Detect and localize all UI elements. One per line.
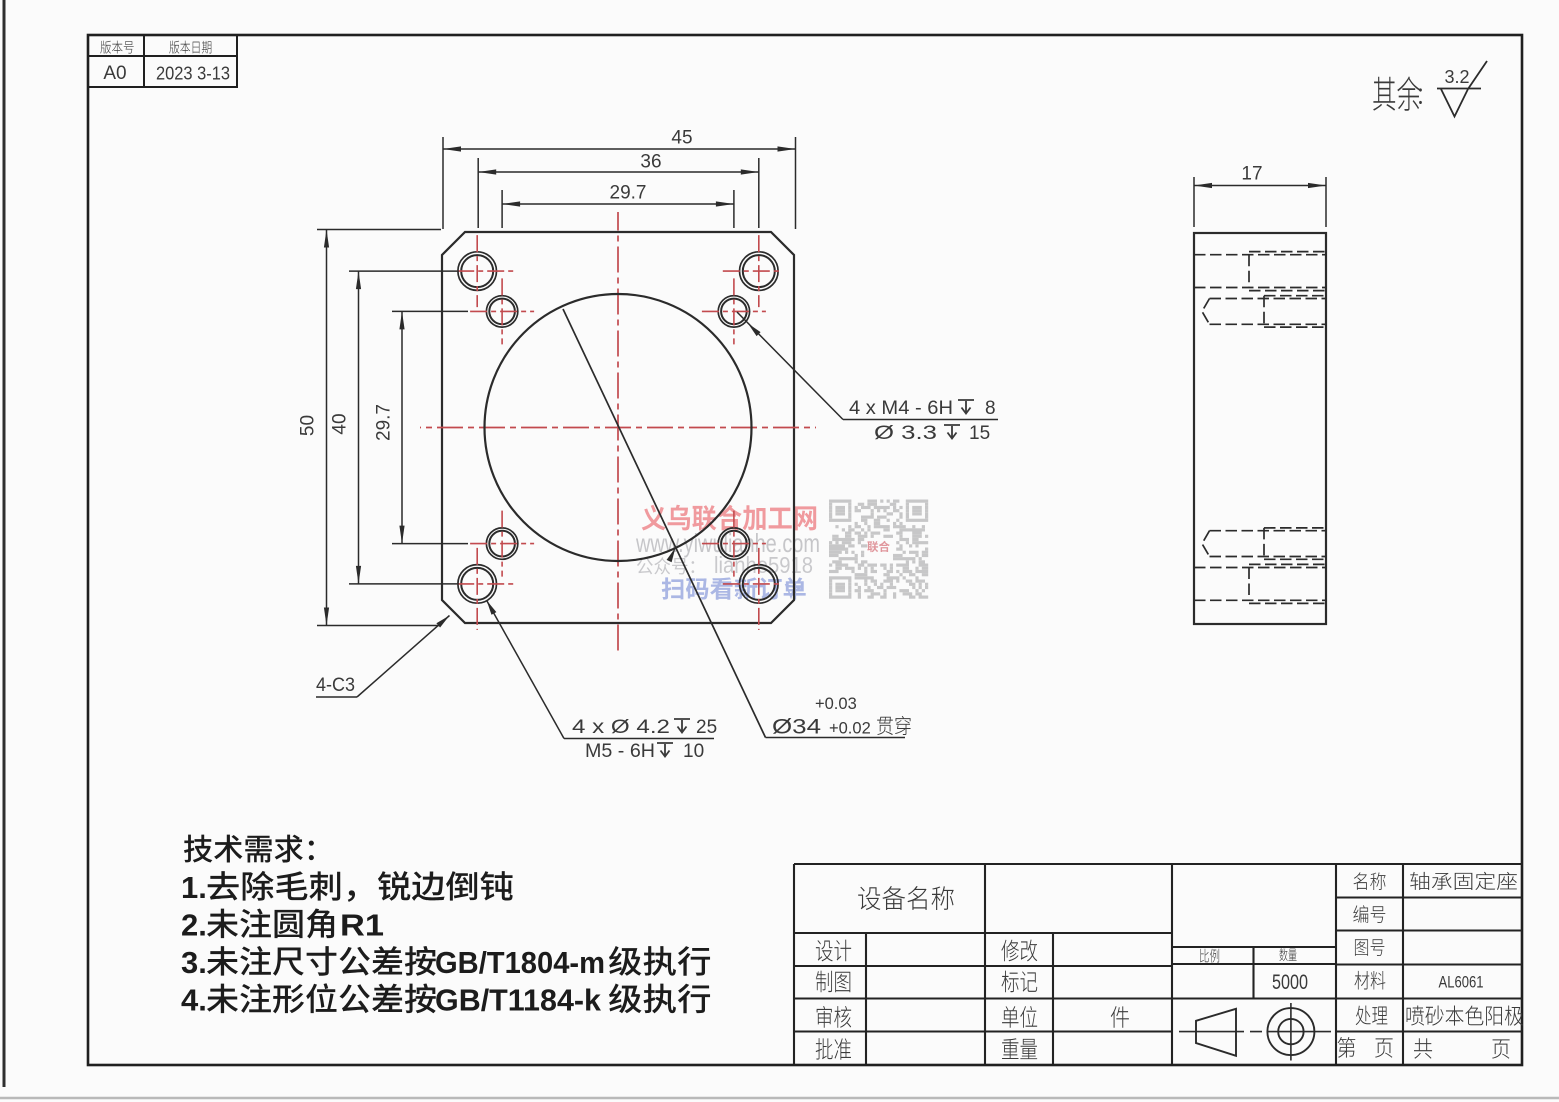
svg-text:AL6061: AL6061 (1439, 973, 1484, 992)
svg-text:A0: A0 (103, 63, 126, 84)
svg-text:4-C3: 4-C3 (316, 675, 355, 696)
svg-text:36: 36 (640, 152, 661, 173)
svg-text:4 x M4 - 6H: 4 x M4 - 6H (849, 398, 953, 419)
svg-text:GB/T1184-k: GB/T1184-k (435, 983, 602, 1018)
svg-text:2.: 2. (181, 908, 207, 943)
svg-text:25: 25 (696, 717, 717, 738)
svg-text:8: 8 (985, 398, 996, 419)
svg-text:3.2: 3.2 (1444, 67, 1469, 87)
svg-text:15: 15 (969, 423, 990, 444)
svg-text:3.: 3. (181, 945, 207, 980)
svg-text:+0.02: +0.02 (829, 720, 871, 738)
svg-text:40: 40 (330, 413, 351, 434)
svg-text:4.: 4. (181, 983, 207, 1018)
svg-text:17: 17 (1241, 164, 1262, 185)
svg-text:+0.03: +0.03 (815, 695, 857, 713)
svg-text:1.: 1. (181, 870, 207, 905)
svg-text:Ø34: Ø34 (772, 716, 821, 739)
svg-text:45: 45 (671, 128, 692, 149)
svg-text:2023 3-13: 2023 3-13 (156, 63, 230, 84)
svg-text:R1: R1 (340, 908, 384, 943)
svg-text:29.7: 29.7 (610, 183, 647, 204)
svg-text:5000: 5000 (1272, 971, 1308, 994)
svg-text:Ø 3.3: Ø 3.3 (874, 423, 937, 444)
svg-text:29.7: 29.7 (374, 404, 395, 441)
svg-text:50: 50 (298, 415, 319, 436)
svg-text:M5 - 6H: M5 - 6H (585, 741, 655, 762)
svg-text:GB/T1804-m: GB/T1804-m (435, 945, 605, 980)
svg-text:4 x Ø 4.2: 4 x Ø 4.2 (572, 717, 670, 738)
svg-text:10: 10 (683, 741, 704, 762)
